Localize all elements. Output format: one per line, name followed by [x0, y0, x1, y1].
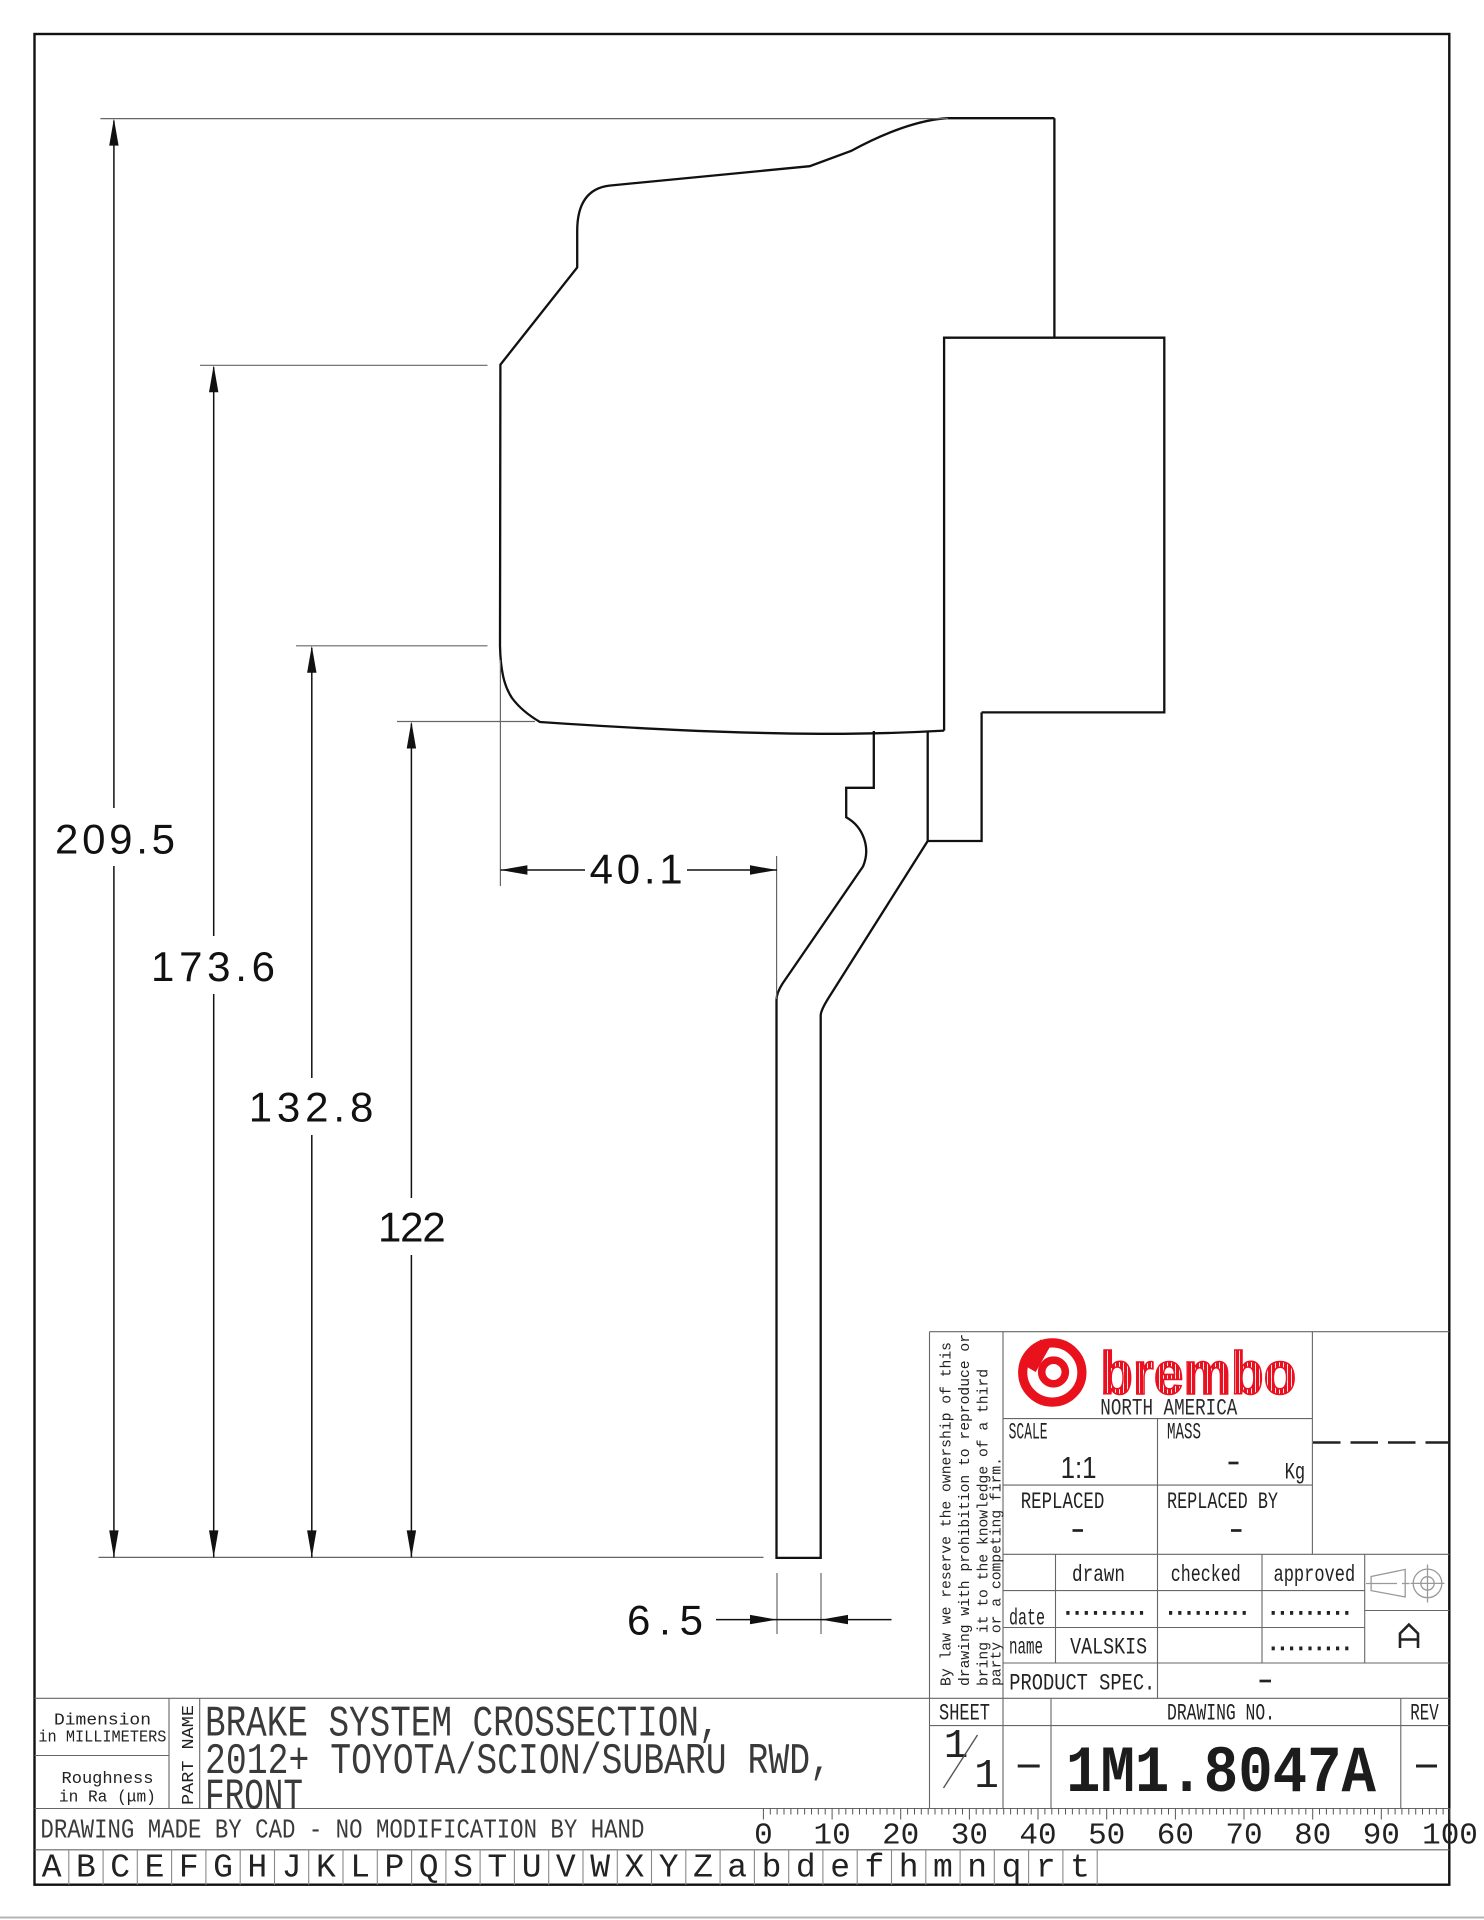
svg-text:By law we reserve the ownershi: By law we reserve the ownership of this [938, 1342, 956, 1686]
svg-text:90: 90 [1363, 1819, 1400, 1854]
svg-text:SCALE: SCALE [1009, 1420, 1048, 1446]
svg-text:U: U [522, 1850, 542, 1887]
svg-text:1M1.8047A: 1M1.8047A [1066, 1736, 1376, 1811]
svg-text:q: q [1002, 1850, 1022, 1887]
svg-text:50: 50 [1088, 1819, 1125, 1854]
svg-text:B: B [76, 1850, 96, 1887]
svg-text:H: H [247, 1850, 267, 1887]
svg-text:Roughness: Roughness [62, 1770, 154, 1789]
svg-text:name: name [1009, 1635, 1043, 1661]
svg-text:80: 80 [1294, 1819, 1331, 1854]
svg-text:PRODUCT SPEC.: PRODUCT SPEC. [1009, 1671, 1155, 1697]
svg-text:173.6: 173.6 [151, 943, 275, 990]
svg-text:1: 1 [944, 1724, 969, 1770]
svg-text:a: a [727, 1850, 747, 1887]
svg-text:drawn: drawn [1072, 1562, 1125, 1588]
svg-text:DRAWING NO.: DRAWING NO. [1167, 1701, 1275, 1727]
svg-text:f: f [864, 1850, 884, 1887]
svg-text:W: W [590, 1850, 610, 1887]
svg-text:e: e [830, 1850, 850, 1887]
svg-text:132.8: 132.8 [249, 1084, 374, 1131]
svg-text:checked: checked [1171, 1562, 1241, 1588]
svg-text:F: F [179, 1850, 199, 1887]
svg-text:REV: REV [1410, 1701, 1439, 1727]
svg-text:X: X [624, 1850, 644, 1887]
svg-text:C: C [110, 1850, 130, 1887]
svg-text:70: 70 [1225, 1819, 1262, 1854]
svg-text:40.1: 40.1 [590, 846, 683, 893]
svg-text:FRONT: FRONT [205, 1773, 303, 1823]
svg-text:REPLACED BY: REPLACED BY [1167, 1489, 1278, 1515]
svg-text:G: G [213, 1850, 233, 1887]
svg-text:K: K [316, 1850, 336, 1887]
svg-text:Kg: Kg [1285, 1460, 1306, 1486]
svg-text:REPLACED: REPLACED [1021, 1489, 1105, 1515]
svg-text:30: 30 [951, 1819, 988, 1854]
svg-text:209.5: 209.5 [55, 816, 175, 863]
svg-text:m: m [933, 1850, 953, 1887]
svg-text:0: 0 [754, 1819, 773, 1854]
svg-text:J: J [282, 1850, 302, 1887]
svg-text:20: 20 [882, 1819, 919, 1854]
svg-text:S: S [453, 1850, 473, 1887]
svg-text:MASS: MASS [1167, 1420, 1201, 1446]
svg-text:V: V [556, 1850, 576, 1887]
svg-text:date: date [1009, 1606, 1045, 1632]
svg-text:10: 10 [813, 1819, 850, 1854]
svg-text:60: 60 [1157, 1819, 1194, 1854]
svg-text:100: 100 [1422, 1819, 1478, 1854]
svg-text:1: 1 [974, 1754, 999, 1800]
svg-text:122: 122 [378, 1204, 446, 1251]
svg-text:6.5: 6.5 [627, 1597, 703, 1644]
svg-text:r: r [1036, 1850, 1056, 1887]
svg-text:DRAWING MADE BY CAD - NO MODIF: DRAWING MADE BY CAD - NO MODIFICATION BY… [40, 1817, 644, 1847]
svg-text:PART NAME: PART NAME [180, 1705, 199, 1805]
svg-text:in Ra (μm): in Ra (μm) [59, 1789, 156, 1808]
svg-text:approved: approved [1274, 1562, 1356, 1588]
svg-text:L: L [350, 1850, 370, 1887]
svg-text:NORTH AMERICA: NORTH AMERICA [1100, 1396, 1237, 1422]
svg-text:Y: Y [659, 1850, 679, 1887]
svg-text:SHEET: SHEET [939, 1701, 990, 1727]
svg-text:h: h [899, 1850, 919, 1887]
svg-text:E: E [145, 1850, 165, 1887]
svg-text:1:1: 1:1 [1061, 1450, 1097, 1485]
svg-text:P: P [384, 1850, 404, 1887]
svg-text:40: 40 [1019, 1819, 1056, 1854]
svg-text:Z: Z [693, 1850, 713, 1887]
svg-text:d: d [796, 1850, 816, 1887]
svg-text:in MILLIMETERS: in MILLIMETERS [38, 1729, 166, 1748]
svg-text:drawing with prohibition to re: drawing with prohibition to reproduce or [956, 1334, 974, 1686]
svg-text:VALSKIS: VALSKIS [1070, 1635, 1147, 1661]
svg-text:party or a competing firm.: party or a competing firm. [988, 1457, 1006, 1686]
svg-text:T: T [487, 1850, 507, 1887]
svg-text:b: b [762, 1850, 782, 1887]
svg-text:t: t [1070, 1850, 1090, 1887]
svg-text:Q: Q [419, 1850, 439, 1887]
svg-text:A: A [42, 1850, 62, 1887]
svg-text:n: n [967, 1850, 987, 1887]
